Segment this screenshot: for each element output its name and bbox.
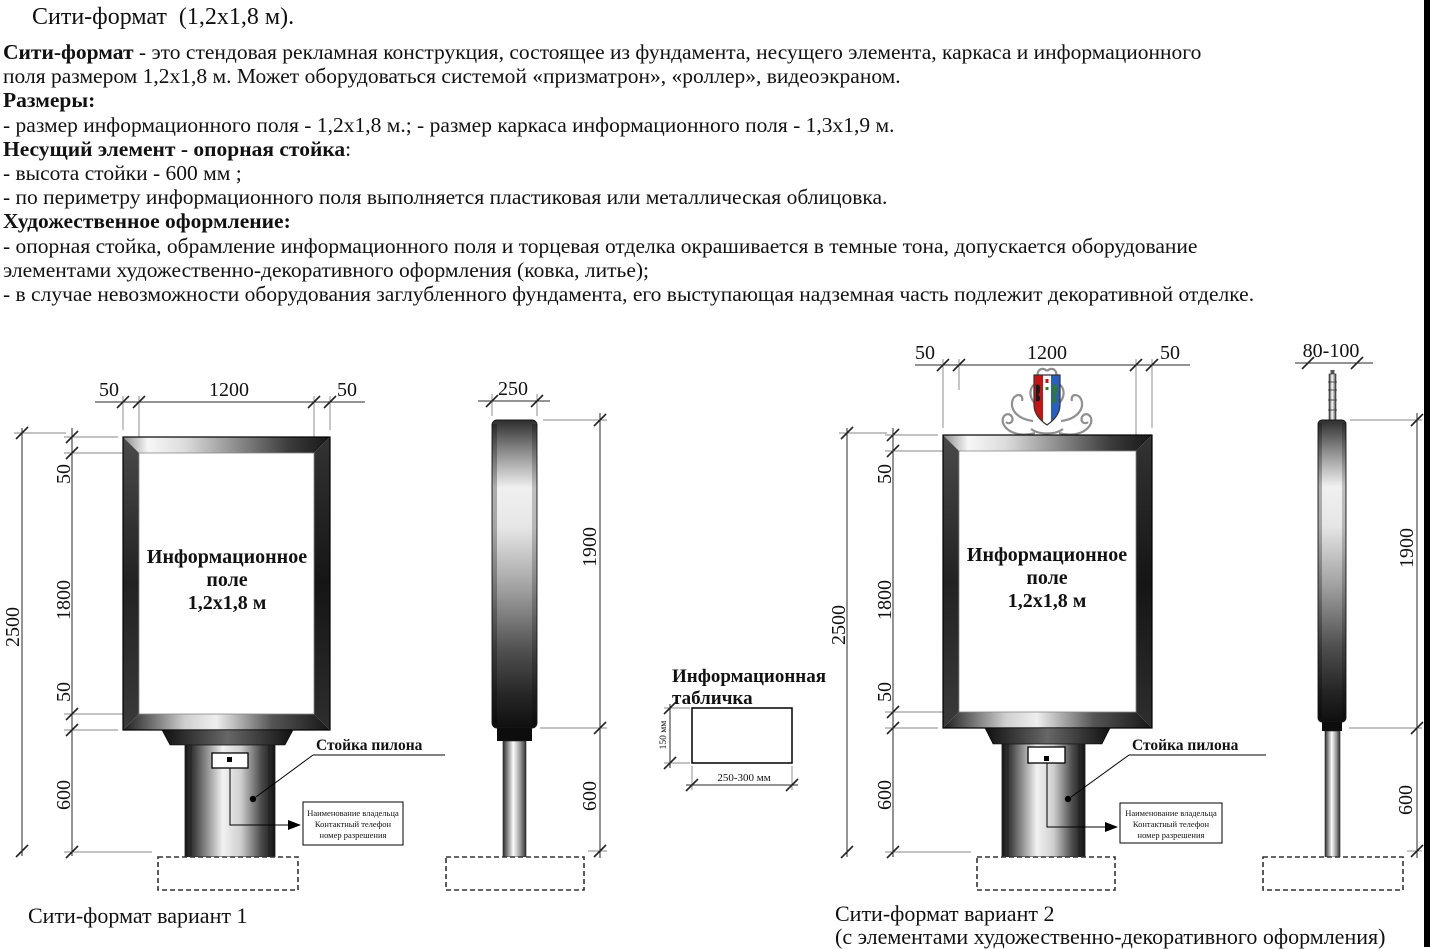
dim-label: 600 <box>1395 785 1417 815</box>
dim-label: 150 мм <box>659 721 669 750</box>
side2-panel <box>1318 420 1346 722</box>
pylon-label-text: Стойка пилона <box>316 737 423 754</box>
side2-width-dimension: 80-100 <box>1295 340 1373 369</box>
side2-post <box>1325 731 1340 857</box>
info-plate-title: табличка <box>672 688 753 709</box>
variant2-foundation <box>977 857 1115 890</box>
variant2-caption-line1: Сити-формат вариант 2 <box>835 902 1385 925</box>
dim-label: 50 <box>99 379 119 401</box>
variant2-pylon-label: Стойка пилона <box>1065 737 1266 802</box>
variant1-front-view: 50 1200 50 2500 50 1800 50 600 <box>2 379 445 890</box>
dim-label: 1200 <box>1027 342 1067 364</box>
dim-label: 50 <box>874 464 896 484</box>
dim-label: 1900 <box>1396 528 1418 568</box>
variant1-pylon-label: Стойка пилона <box>250 737 445 802</box>
side-view-2: 80-100 1900 600 <box>1263 340 1423 890</box>
info-plate-detail: Информационная табличка 150 мм 250-300 м… <box>659 666 826 791</box>
side1-height-dimension: 1900 600 <box>540 413 607 858</box>
info-plate-height-dimension: 150 мм <box>659 702 690 769</box>
pylon-label-text: Стойка пилона <box>1132 737 1239 754</box>
owner-info-line: Наименование владельца <box>1125 808 1217 818</box>
info-plate-rect <box>692 708 792 763</box>
coat-of-arms-icon <box>1003 369 1092 435</box>
technical-drawing: 50 1200 50 2500 50 1800 50 600 <box>0 0 1430 947</box>
dim-label: 50 <box>53 464 75 484</box>
side2-panel-cap <box>1322 722 1342 731</box>
owner-info-line: номер разрешения <box>320 830 387 840</box>
dim-label: 1900 <box>579 527 601 567</box>
side2-finial <box>1328 370 1337 420</box>
info-plate-title: Информационная <box>672 666 826 687</box>
info-field-label: 1,2х1,8 м <box>1008 590 1087 612</box>
variant1-panel: Информационное поле 1,2х1,8 м <box>123 437 330 730</box>
dim-label: 50 <box>337 379 357 401</box>
dim-label: 50 <box>1160 342 1180 364</box>
dim-label: 1200 <box>209 379 249 401</box>
dim-label: 50 <box>915 342 935 364</box>
dim-label: 600 <box>53 780 75 810</box>
dim-label: 2500 <box>2 607 24 647</box>
info-plate-width-dimension: 250-300 мм <box>686 766 798 791</box>
variant1-foundation <box>158 857 298 890</box>
variant2-caption: Сити-формат вариант 2 (с элементами худо… <box>835 902 1385 948</box>
side1-panel <box>492 420 537 728</box>
side1-width-dimension: 250 <box>478 378 550 416</box>
dim-label: 1800 <box>53 580 75 620</box>
variant2-panel: Информационное поле 1,2х1,8 м <box>943 435 1152 728</box>
dim-label: 50 <box>874 682 896 702</box>
info-field-label: поле <box>206 569 247 591</box>
owner-info-line: номер разрешения <box>1138 830 1205 840</box>
dim-label: 80-100 <box>1303 340 1360 362</box>
variant2-front-view: 50 1200 50 2500 50 1800 50 600 <box>828 342 1266 890</box>
side-view-1: 250 1900 600 <box>446 378 607 890</box>
dim-label: 600 <box>579 781 601 811</box>
info-field-label: Информационное <box>967 544 1127 566</box>
side1-post <box>503 741 526 857</box>
dim-label: 600 <box>874 780 896 810</box>
owner-info-line: Наименование владельца <box>307 808 399 818</box>
side2-foundation <box>1263 857 1403 890</box>
owner-info-line: Контактный телефон <box>1133 819 1210 829</box>
variant1-stand <box>162 730 293 857</box>
dim-label: 1800 <box>874 580 896 620</box>
info-field-label: поле <box>1026 567 1067 589</box>
info-field-label: 1,2х1,8 м <box>188 592 267 614</box>
scan-edge-strip <box>1424 0 1430 947</box>
side1-foundation <box>446 857 584 890</box>
dim-label: 250 <box>498 378 528 400</box>
side1-panel-cap <box>497 728 532 741</box>
owner-info-line: Контактный телефон <box>315 819 392 829</box>
side2-height-dimension: 1900 600 <box>1349 413 1423 858</box>
variant2-caption-line2: (с элементами художественно-декоративног… <box>835 925 1385 948</box>
dim-label: 50 <box>53 682 75 702</box>
info-field-label: Информационное <box>147 546 307 568</box>
variant1-caption: Сити-формат вариант 1 <box>28 904 247 927</box>
dim-label: 250-300 мм <box>717 772 770 784</box>
dim-label: 2500 <box>828 605 850 645</box>
